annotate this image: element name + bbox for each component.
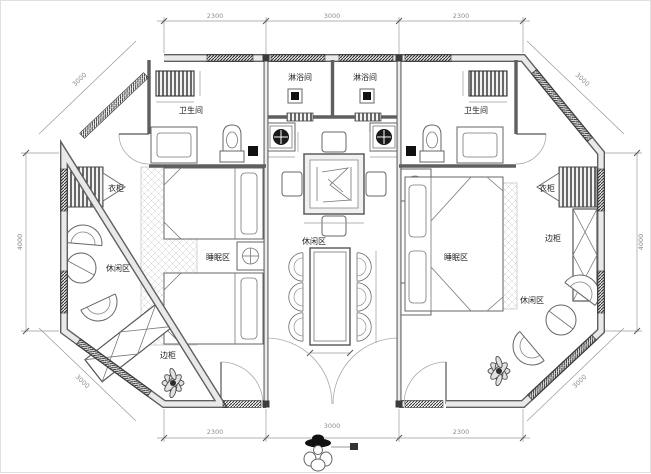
label-leisure-left: 休闲区 — [106, 263, 130, 273]
dim-bottom-left: 2300 — [207, 428, 224, 436]
shower-tray-right — [457, 127, 503, 163]
vanity-left — [267, 123, 295, 157]
double-bed — [405, 177, 503, 311]
fan-chair-right-2 — [505, 331, 544, 372]
label-cabinet-left: 边柜 — [160, 350, 176, 360]
single-bed-1 — [164, 168, 263, 239]
vanity-right — [370, 123, 398, 157]
label-shower-left: 淋浴间 — [288, 72, 312, 82]
louver-cabinet-left — [156, 71, 194, 96]
label-sleep-left: 睡眠区 — [206, 253, 230, 262]
round-table-left — [66, 253, 96, 283]
toilet-left — [220, 125, 244, 162]
plant-left — [162, 368, 184, 399]
dim-right: 4000 — [637, 234, 645, 251]
label-sleep-right: 睡眠区 — [444, 253, 468, 262]
shower-tray-left — [151, 127, 197, 163]
dim-diag-bottom-right: 3000 — [571, 373, 588, 390]
shower-room-right — [355, 89, 381, 121]
dim-diag-top-left: 3000 — [71, 71, 88, 88]
central-hall-furniture — [282, 132, 386, 471]
label-wardrobe-left: 衣柜 — [108, 183, 124, 193]
floor-plan-canvas: 2300 3000 2300 2300 3000 2300 4000 4000 … — [0, 0, 651, 473]
floor-drain-bath-right — [406, 146, 416, 156]
label-leisure-right: 休闲区 — [520, 295, 544, 305]
label-leisure-center: 休闲区 — [302, 236, 326, 246]
dim-top-right: 2300 — [453, 12, 470, 20]
round-table-right — [546, 305, 576, 335]
label-cabinet-right: 边柜 — [545, 233, 561, 243]
nightstand-left — [237, 242, 264, 270]
toilet-right — [420, 125, 444, 162]
fan-chair-left-2 — [81, 294, 123, 327]
dim-top-center: 3000 — [324, 12, 341, 20]
louver-cabinet-right — [469, 71, 507, 96]
floor-drain-bath-left — [248, 146, 258, 156]
dining-table — [289, 248, 376, 356]
dim-bottom-right: 2300 — [453, 428, 470, 436]
label-bath-left: 卫生间 — [179, 105, 203, 115]
dim-left: 4000 — [16, 234, 24, 251]
dim-diag-top-right: 3000 — [574, 71, 591, 88]
entrance-figure — [304, 435, 358, 472]
fan-chair-left-1 — [64, 223, 104, 245]
dim-top-left: 2300 — [207, 12, 224, 20]
floor-plan-drawing: 2300 3000 2300 2300 3000 2300 4000 4000 … — [1, 1, 651, 474]
dim-entrance: 3000 — [324, 422, 341, 430]
label-bath-right: 卫生间 — [464, 105, 488, 115]
label-shower-right: 淋浴间 — [353, 72, 377, 82]
label-wardrobe-right: 衣柜 — [539, 183, 555, 193]
plant-right — [488, 356, 510, 387]
shower-room-left — [287, 89, 313, 121]
